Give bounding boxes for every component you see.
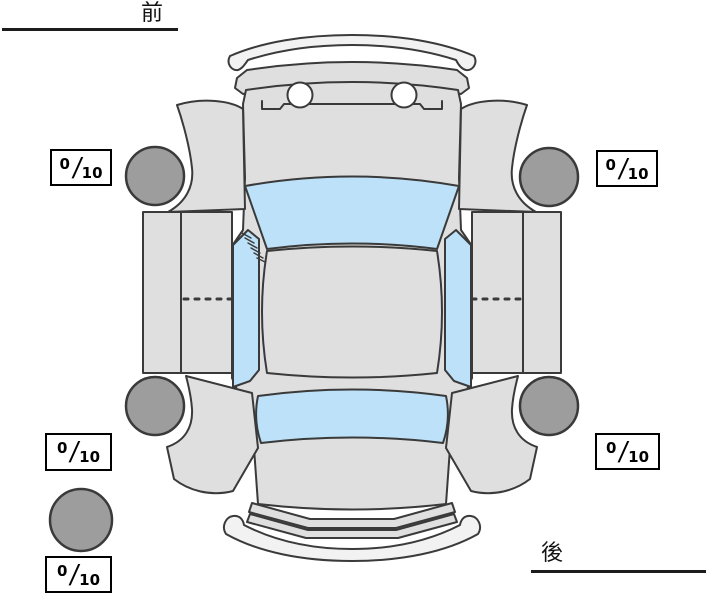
front-left-tire (126, 147, 184, 205)
front-right-fender (459, 101, 536, 212)
tire-condition-diagram: 前 後 (0, 0, 711, 600)
rear-left-tire (126, 377, 184, 435)
score-value: 0 (57, 439, 67, 457)
tire-score-front-right: 0/10 (596, 150, 658, 187)
right-side-window (445, 230, 471, 387)
rear-window (256, 390, 448, 444)
score-value: 0 (59, 155, 69, 173)
tire-score-rear-right: 0/10 (595, 433, 660, 470)
left-door-panel (143, 212, 232, 373)
car-top-view (0, 0, 711, 600)
tire-score-front-left: 0/10 (50, 149, 112, 186)
front-right-tire (520, 148, 578, 206)
score-max: 10 (628, 165, 649, 183)
tire-score-spare: 0/10 (45, 556, 112, 593)
rear-right-tire (520, 377, 578, 435)
tire-score-rear-left: 0/10 (45, 433, 112, 471)
spare-tire (50, 489, 112, 551)
right-door-panel (472, 212, 561, 373)
score-value: 0 (57, 562, 67, 580)
score-value: 0 (606, 439, 616, 457)
score-max: 10 (79, 448, 100, 466)
score-value: 0 (605, 156, 615, 174)
roof-panel (262, 247, 442, 378)
right-headlight-icon (392, 83, 417, 108)
score-max: 10 (79, 571, 100, 589)
left-headlight-icon (288, 83, 313, 108)
front-left-fender (168, 101, 245, 212)
windshield (245, 177, 459, 250)
score-max: 10 (82, 164, 103, 182)
score-max: 10 (628, 448, 649, 466)
